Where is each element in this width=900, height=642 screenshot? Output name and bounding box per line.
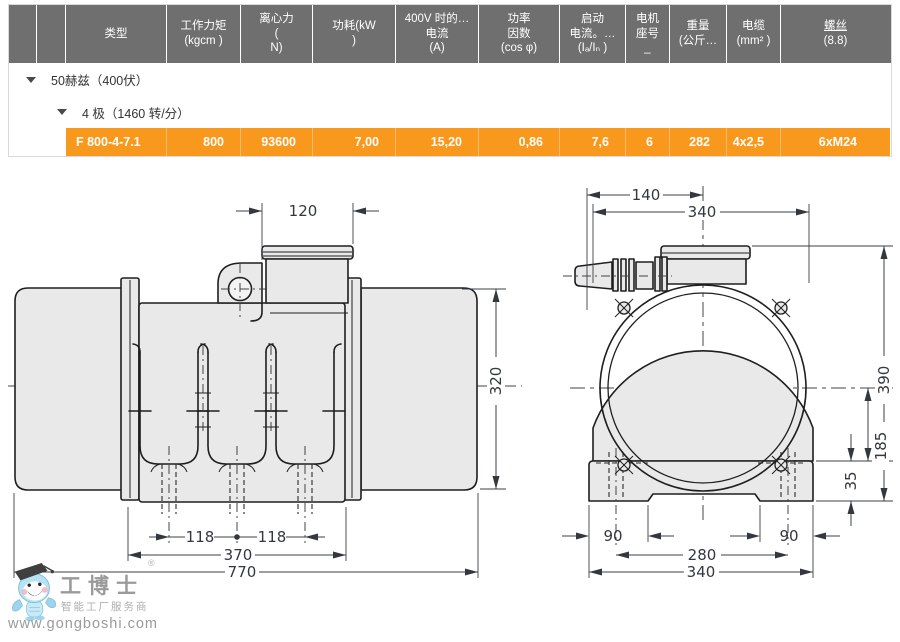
dim-front-base-width: 340: [589, 563, 813, 581]
page: 120 320 118 118: [0, 0, 900, 642]
header-expand-col2: [37, 5, 66, 63]
cell-centrifugal-force[interactable]: 93600: [241, 128, 313, 156]
cell-cable[interactable]: 4x2,5: [727, 128, 781, 156]
group-label-frequency: 50赫兹（400伏）: [51, 70, 148, 89]
collapse-triangle-icon[interactable]: [26, 77, 36, 83]
group-row-poles[interactable]: 4 极（1460 转/分）: [9, 96, 891, 128]
row-spacer: [9, 128, 37, 156]
header-expand-col1: [9, 5, 37, 63]
header-weight: 重量(公斤…: [670, 5, 727, 63]
mascot-icon: [8, 557, 62, 623]
svg-text:90: 90: [603, 527, 622, 545]
header-frame-number: 电机座号 _: [626, 5, 670, 63]
brand-tagline: 智能工厂服务商: [61, 599, 149, 614]
group-label-poles: 4 极（1460 转/分）: [82, 103, 190, 122]
header-power: 功耗(kW): [313, 5, 396, 63]
header-power-factor: 功率因数 (cos φ): [479, 5, 560, 63]
svg-text:370: 370: [224, 546, 253, 564]
cell-power-factor[interactable]: 0,86: [479, 128, 560, 156]
cell-screws[interactable]: 6xM24: [781, 128, 890, 156]
svg-text:770: 770: [228, 563, 257, 581]
svg-text:118: 118: [186, 528, 215, 546]
cell-starting-current[interactable]: 7,6: [560, 128, 626, 156]
svg-text:390: 390: [875, 366, 893, 395]
spec-table: 类型 工作力矩(kgcm ) 离心力( N) 功耗(kW) 400V 时的…电流…: [8, 4, 892, 157]
svg-text:185: 185: [872, 432, 890, 461]
cable-gland: [563, 257, 672, 291]
front-terminal-box: [667, 259, 746, 284]
selected-model-row[interactable]: F 800-4-7.1 800 93600 7,00 15,20 0,86 7,…: [9, 128, 891, 156]
svg-text:90: 90: [779, 527, 798, 545]
header-starting-current: 启动电流。… (Iₐ/Iₙ ): [560, 5, 626, 63]
dim-front-slot-width: 280: [616, 546, 788, 564]
svg-text:140: 140: [632, 186, 661, 204]
header-cable: 电缆(mm² ): [727, 5, 781, 63]
cell-frame-number[interactable]: 6: [626, 128, 670, 156]
header-screws: 螺丝(8.8): [781, 5, 890, 63]
registered-mark: ®: [148, 558, 155, 568]
side-right-cover: [361, 288, 477, 490]
header-type: 类型: [66, 5, 167, 63]
dim-front-feet: 90 90: [562, 527, 840, 545]
row-spacer: [37, 128, 66, 156]
gongboshi-logo[interactable]: 工博士 ® 智能工厂服务商 www.gongboshi.com: [8, 554, 168, 638]
group-row-frequency[interactable]: 50赫兹（400伏）: [9, 63, 891, 96]
header-working-torque: 工作力矩(kgcm ): [167, 5, 241, 63]
dim-front-base-height: 35: [842, 434, 860, 526]
cell-working-torque[interactable]: 800: [167, 128, 241, 156]
header-centrifugal-force: 离心力( N): [241, 5, 313, 63]
svg-text:118: 118: [258, 528, 287, 546]
svg-text:340: 340: [688, 203, 717, 221]
cell-current[interactable]: 15,20: [396, 128, 479, 156]
side-body: [139, 303, 345, 502]
cell-type[interactable]: F 800-4-7.1: [66, 128, 167, 156]
svg-text:320: 320: [487, 367, 505, 396]
cell-power[interactable]: 7,00: [313, 128, 396, 156]
svg-text:280: 280: [688, 546, 717, 564]
svg-text:120: 120: [289, 202, 318, 220]
brand-name: 工博士: [60, 570, 144, 600]
side-terminal-box: [266, 259, 348, 303]
svg-text:340: 340: [687, 563, 716, 581]
brand-url[interactable]: www.gongboshi.com: [8, 616, 158, 632]
collapse-triangle-icon[interactable]: [57, 109, 67, 115]
cell-weight[interactable]: 282: [670, 128, 727, 156]
svg-text:35: 35: [842, 471, 860, 490]
table-header: 类型 工作力矩(kgcm ) 离心力( N) 功耗(kW) 400V 时的…电流…: [9, 5, 891, 63]
side-left-cover: [15, 288, 122, 490]
header-current-400v: 400V 时的…电流 (A): [396, 5, 479, 63]
